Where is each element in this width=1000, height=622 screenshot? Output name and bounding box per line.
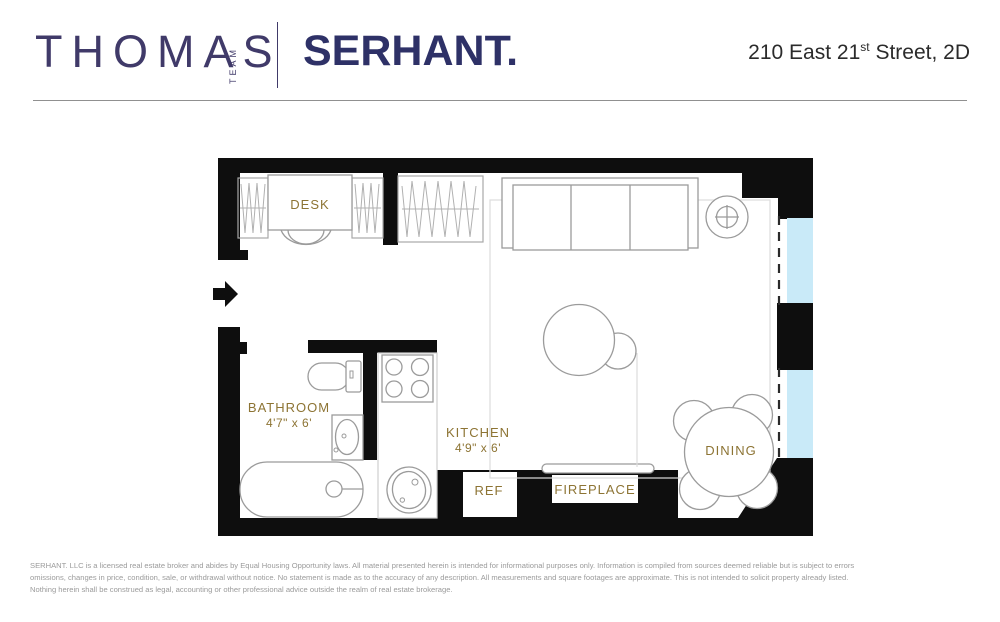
desk-label: DESK — [290, 197, 329, 212]
window-lower — [787, 370, 813, 458]
ottomans — [544, 305, 637, 376]
kitchen-label: KITCHEN 4'9" x 6' — [446, 425, 510, 455]
floorplan-sheet: THOMAS TEAM SERHANT. 210 East 21st Stree… — [0, 0, 1000, 622]
disclaimer-line: SERHANT. LLC is a licensed real estate b… — [30, 560, 978, 572]
kitchen-name: KITCHEN — [446, 425, 510, 440]
disclaimer-line: omissions, changes in price, condition, … — [30, 572, 978, 584]
kitchen-counter — [378, 353, 437, 518]
window-upper — [787, 218, 813, 303]
bathroom-dimensions: 4'7" x 6' — [248, 416, 330, 430]
refrigerator-label: REF — [475, 483, 504, 498]
stove — [382, 355, 433, 402]
legal-disclaimer: SERHANT. LLC is a licensed real estate b… — [30, 560, 978, 595]
entry-arrow-icon — [213, 281, 238, 307]
floorplan-drawing — [0, 0, 1000, 622]
toilet — [308, 361, 361, 392]
kitchen-dimensions: 4'9" x 6' — [446, 441, 510, 455]
fireplace-label: FIREPLACE — [554, 482, 635, 497]
bathroom-sink — [332, 415, 363, 460]
bathtub — [240, 462, 363, 517]
disclaimer-line: Nothing herein shall be construed as leg… — [30, 584, 978, 596]
bathroom-name: BATHROOM — [248, 400, 330, 415]
side-table — [706, 196, 748, 238]
bathroom-label: BATHROOM 4'7" x 6' — [248, 400, 330, 430]
dining-label: DINING — [705, 443, 757, 458]
sofa — [502, 178, 698, 250]
